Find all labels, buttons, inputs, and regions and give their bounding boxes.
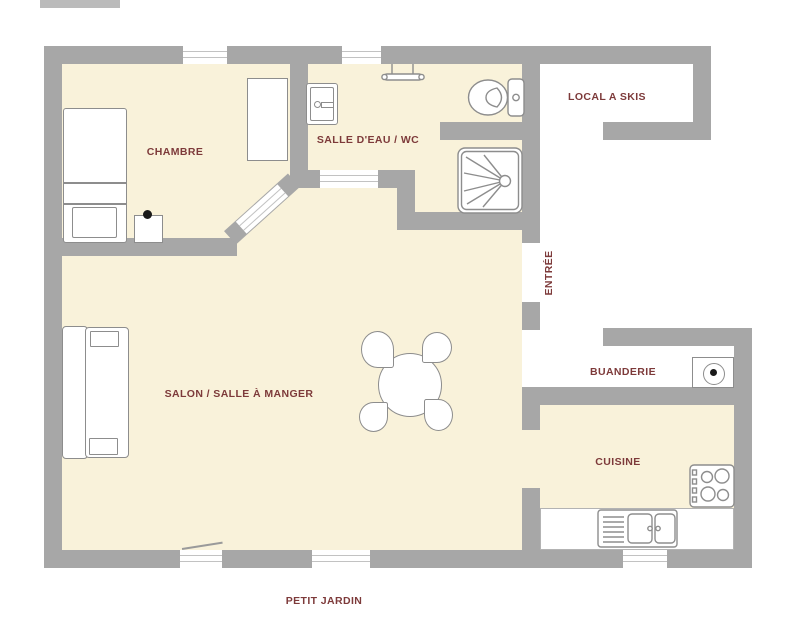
window-icon-jardin-right: [312, 550, 370, 568]
nightstand-icon: [134, 215, 163, 243]
towel-rail-icon: [380, 62, 426, 84]
floor-passage-cuisine: [522, 430, 540, 488]
door-opening-icon-buanderie-h: [540, 328, 603, 346]
room-label-buanderie: BUANDERIE: [590, 366, 656, 378]
door-opening-icon-salle: [320, 170, 378, 188]
wall-local-bottom: [603, 122, 711, 140]
window-icon-jardin-left: [180, 550, 222, 568]
floor-plan: CHAMBRE SALLE D'EAU / WC LOCAL A SKIS EN…: [0, 0, 800, 630]
top-edge-artifact: [40, 0, 120, 8]
room-label-salon: SALON / SALLE À MANGER: [165, 388, 314, 400]
sink-icon: [597, 509, 678, 548]
wall-right-seg4: [522, 488, 540, 550]
window-icon-chambre-top: [183, 46, 227, 64]
outside-label-jardin: PETIT JARDIN: [286, 595, 363, 607]
chair-icon-top-left: [361, 331, 394, 368]
chair-icon-bottom-right: [424, 399, 453, 431]
shower-icon: [457, 147, 523, 214]
room-label-entree: ENTRÉE: [543, 251, 555, 296]
bed-pillow: [72, 207, 117, 238]
room-label-local-skis: LOCAL A SKIS: [568, 91, 646, 103]
chair-icon-bottom-left: [359, 402, 388, 432]
door-opening-icon-entree: [522, 243, 540, 302]
room-label-chambre: CHAMBRE: [147, 146, 203, 158]
washing-machine-icon: [692, 357, 734, 388]
wall-step-vertical: [397, 170, 415, 230]
door-opening-icon-local: [540, 122, 603, 140]
wall-buanderie-bottom: [522, 387, 752, 405]
sofa-cushion-bottom: [89, 438, 118, 455]
room-label-salle-eau: SALLE D'EAU / WC: [317, 134, 419, 146]
cabinet-door-icon: [306, 83, 338, 125]
wall-wing-top: [603, 328, 752, 346]
room-label-cuisine: CUISINE: [595, 456, 640, 468]
sofa-cushion-top: [90, 331, 119, 347]
wall-toilet-stub: [440, 122, 540, 140]
window-icon-salle-top: [342, 46, 381, 64]
wardrobe-icon: [247, 78, 288, 161]
wall-left: [44, 46, 62, 568]
wall-right-seg1: [522, 140, 540, 243]
stove-icon: [689, 464, 735, 508]
lamp-icon: [143, 210, 152, 219]
window-icon-cuisine-bottom: [623, 550, 667, 568]
door-opening-icon-buanderie-v: [522, 330, 540, 387]
chair-icon-top-right: [422, 332, 452, 363]
toilet-icon: [467, 75, 527, 120]
wall-wing-right: [734, 328, 752, 568]
wall-right-seg2: [522, 302, 540, 330]
